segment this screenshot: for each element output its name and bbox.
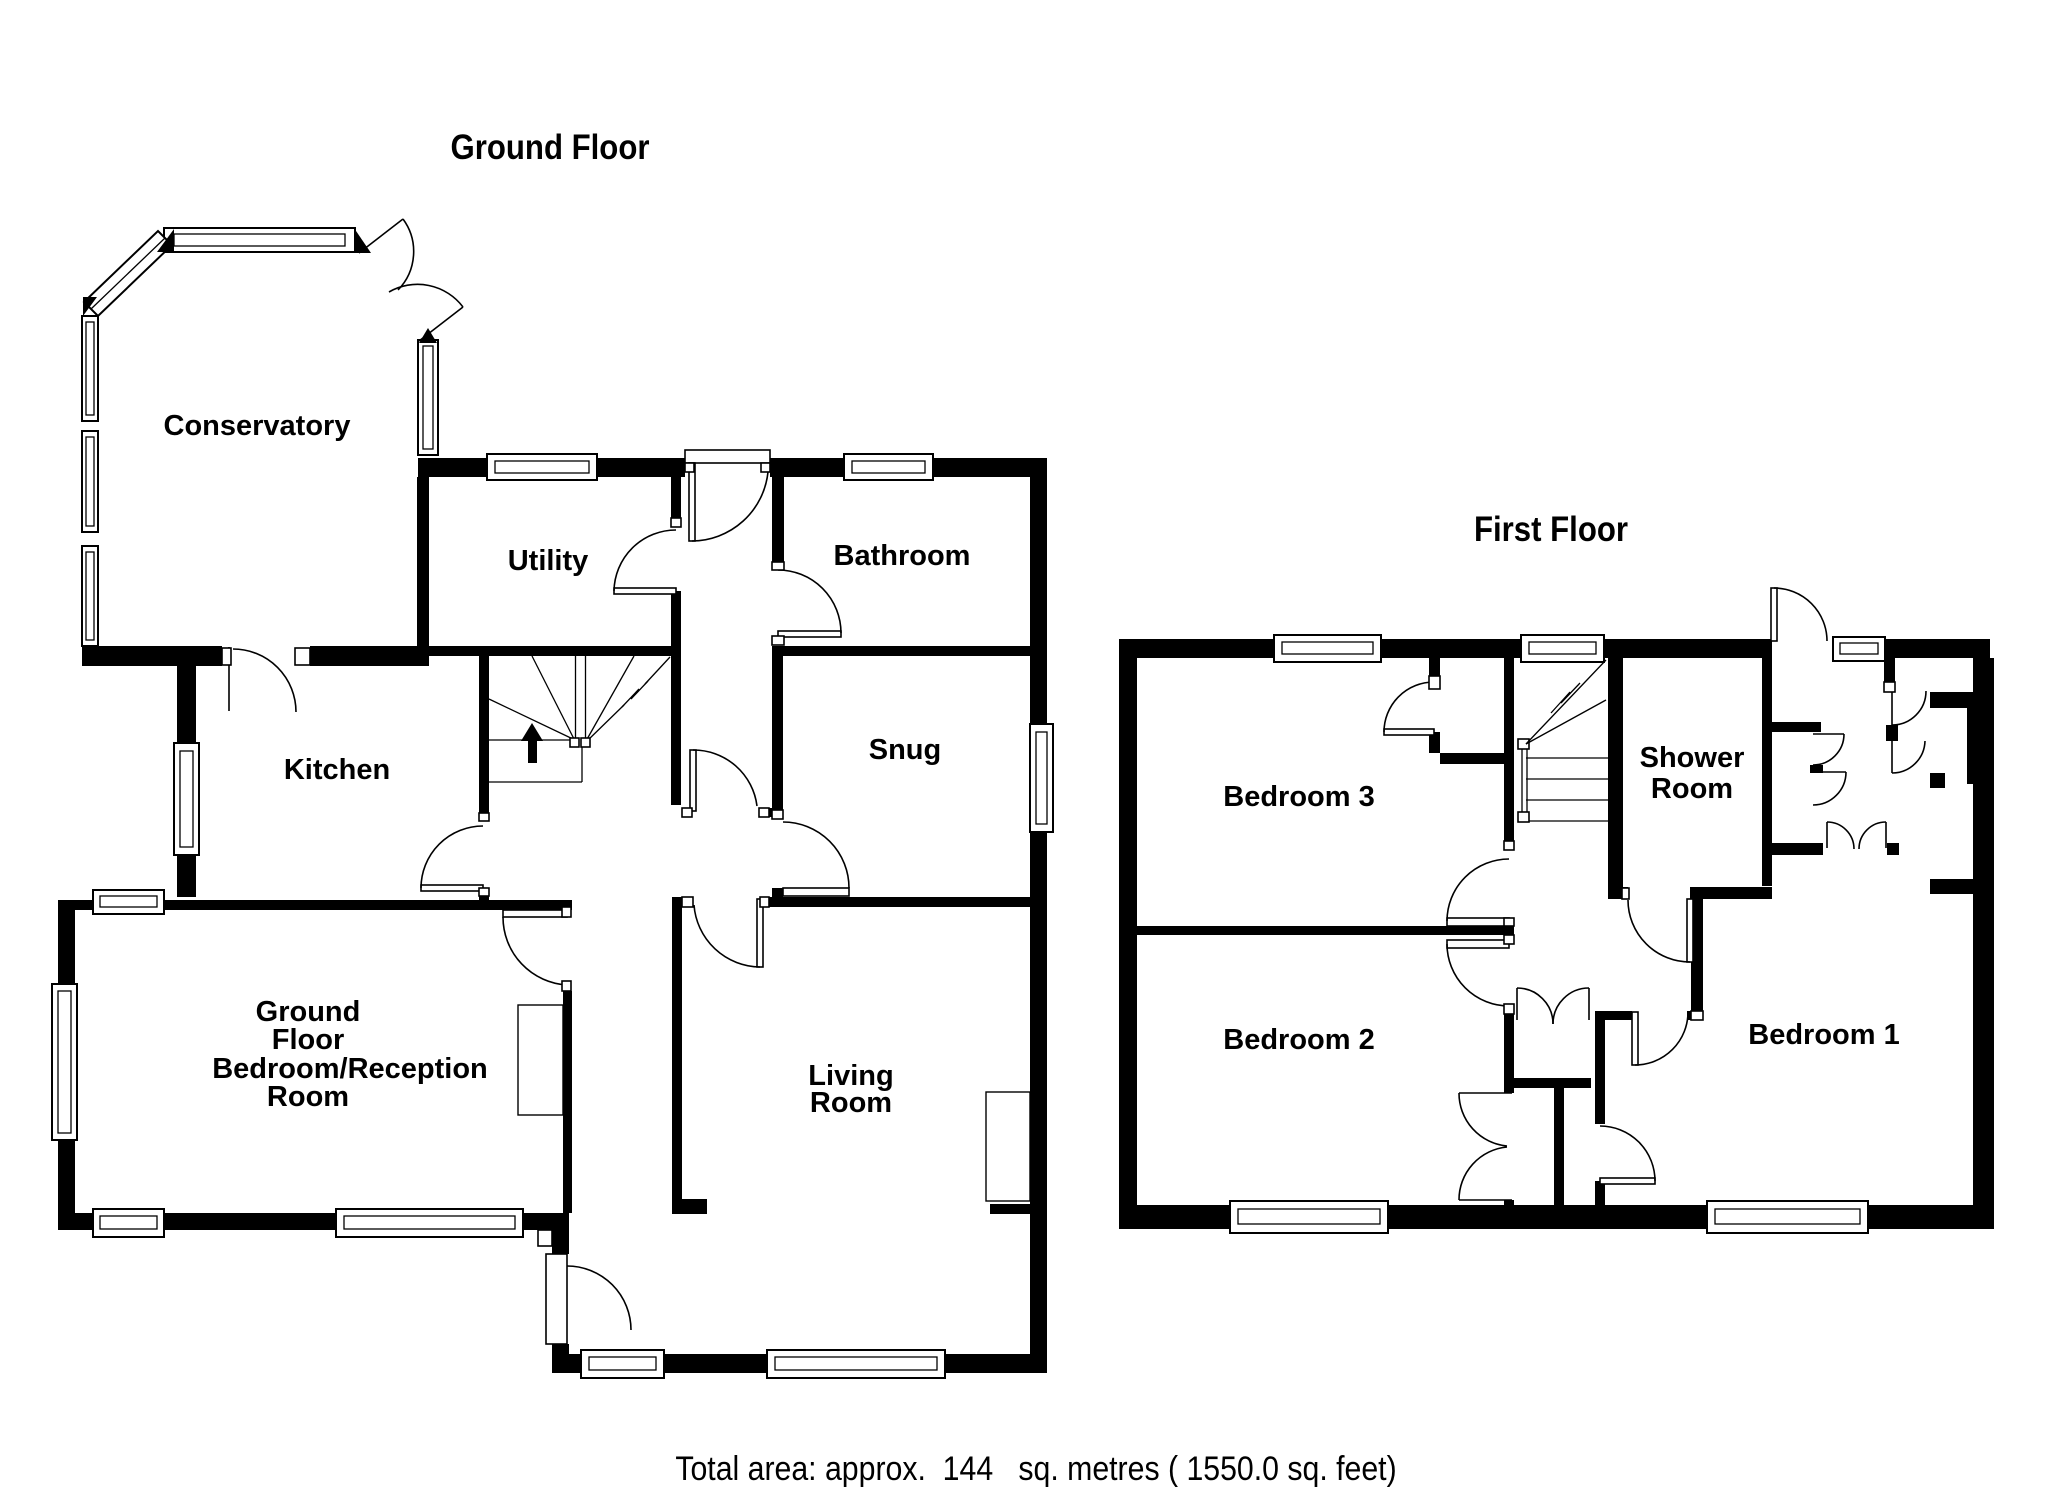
svg-text:Utility: Utility bbox=[508, 545, 589, 577]
svg-text:Snug: Snug bbox=[869, 734, 942, 766]
svg-text:Conservatory: Conservatory bbox=[164, 410, 351, 442]
svg-text:Room: Room bbox=[1651, 773, 1733, 805]
svg-text:Room: Room bbox=[267, 1081, 349, 1113]
svg-text:Kitchen: Kitchen bbox=[284, 754, 390, 786]
svg-text:Bedroom/Reception: Bedroom/Reception bbox=[212, 1053, 488, 1085]
svg-text:Shower: Shower bbox=[1640, 742, 1745, 774]
svg-text:Total area: approx. 144 sq.: Total area: approx. 144 sq. metres ( 155… bbox=[675, 1449, 1396, 1487]
svg-text:Bedroom 3: Bedroom 3 bbox=[1223, 781, 1374, 813]
svg-text:Bedroom 2: Bedroom 2 bbox=[1223, 1024, 1374, 1056]
svg-text:Ground Floor: Ground Floor bbox=[451, 128, 650, 167]
svg-text:Floor: Floor bbox=[272, 1024, 345, 1056]
svg-text:First Floor: First Floor bbox=[1474, 510, 1628, 549]
svg-text:Bedroom 1: Bedroom 1 bbox=[1748, 1019, 1899, 1051]
svg-text:Bathroom: Bathroom bbox=[834, 540, 971, 572]
svg-text:Room: Room bbox=[810, 1087, 892, 1119]
